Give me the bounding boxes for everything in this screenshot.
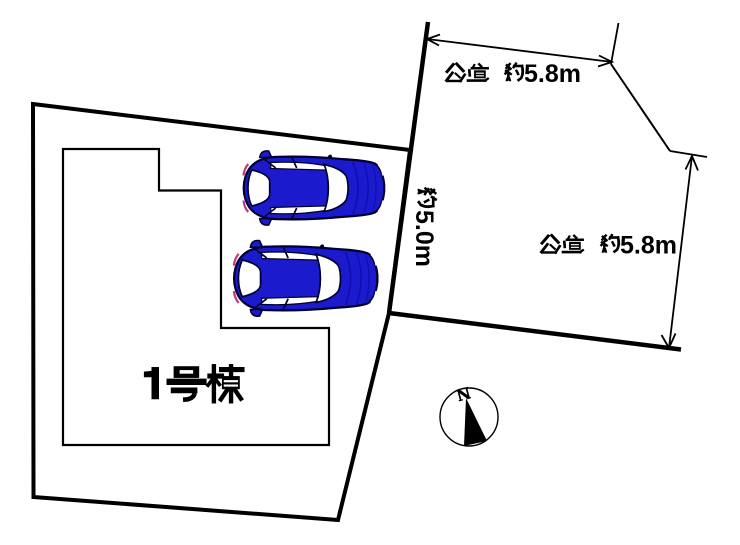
svg-text:5.8m: 5.8m <box>524 60 581 88</box>
svg-text:5.0m: 5.0m <box>410 210 438 267</box>
svg-text:5.8m: 5.8m <box>620 232 677 260</box>
